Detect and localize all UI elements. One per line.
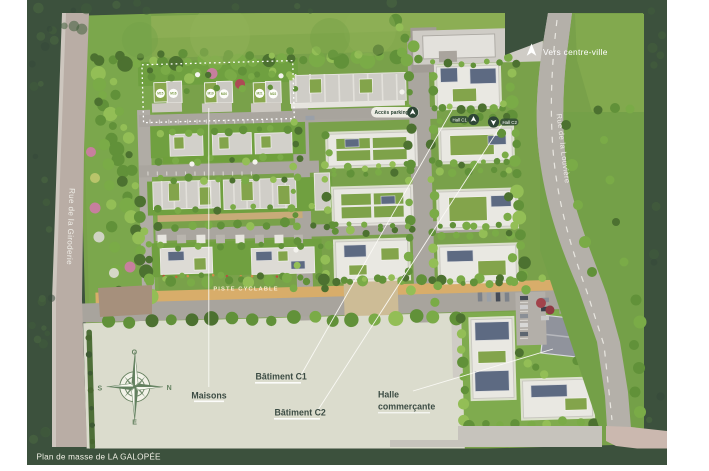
svg-text:M20: M20 [221, 92, 227, 96]
svg-text:M21: M21 [256, 92, 262, 96]
svg-text:S: S [97, 386, 102, 393]
svg-text:commerçante: commerçante [378, 402, 435, 412]
svg-text:M19: M19 [207, 92, 213, 96]
svg-text:Hall C1: Hall C1 [453, 117, 468, 122]
svg-text:Plan de masse de LA GALOPÉE: Plan de masse de LA GALOPÉE [37, 452, 162, 462]
svg-text:Maisons: Maisons [191, 391, 226, 401]
svg-text:M16: M16 [170, 92, 176, 96]
svg-text:N: N [167, 385, 172, 392]
svg-text:Bâtiment C1: Bâtiment C1 [256, 372, 307, 382]
svg-text:Bâtiment C2: Bâtiment C2 [275, 408, 326, 418]
svg-text:O: O [132, 350, 138, 357]
svg-text:E: E [132, 420, 137, 427]
svg-text:M22: M22 [270, 92, 276, 96]
svg-text:Halle: Halle [378, 390, 399, 400]
svg-text:PISTE CYCLABLE: PISTE CYCLABLE [213, 287, 278, 293]
svg-text:Hall C2: Hall C2 [503, 120, 518, 125]
svg-text:Accès parking: Accès parking [375, 110, 409, 116]
svg-text:M15: M15 [157, 92, 163, 96]
svg-text:Vers centre-ville: Vers centre-ville [543, 47, 608, 57]
